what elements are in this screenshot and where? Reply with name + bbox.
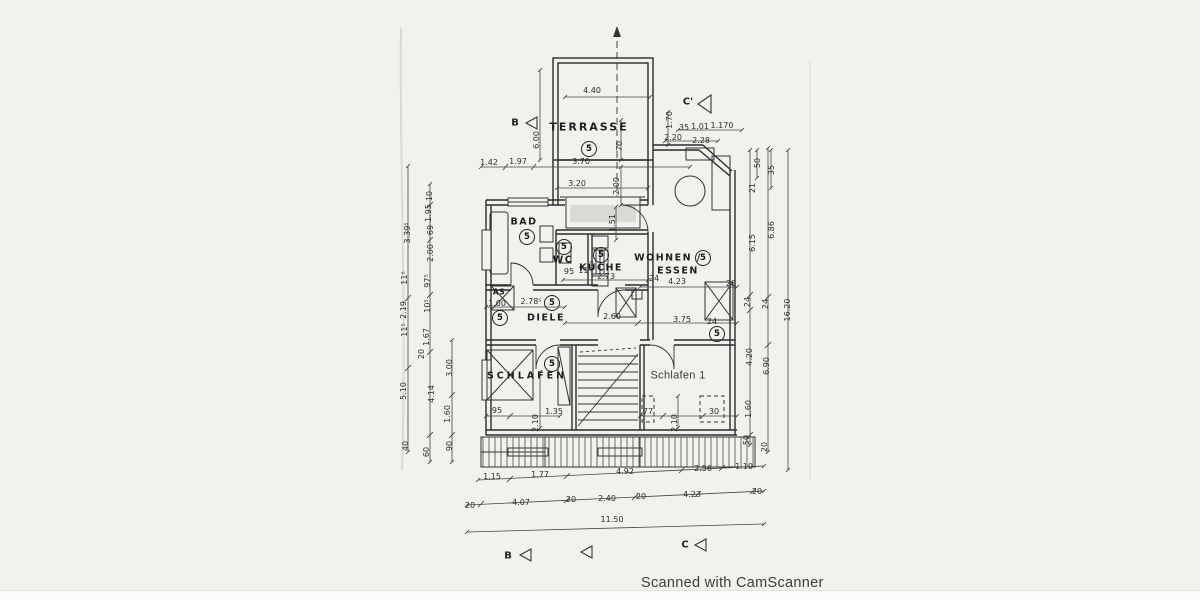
dim-label: 95 [564, 268, 574, 276]
dim-label: 21 [749, 183, 757, 193]
dim-label: 2.78⁵ [520, 298, 541, 306]
dim-label: 1.170 [711, 122, 734, 130]
dim-label: 2.00 [427, 244, 435, 262]
dim-label: 95 [492, 407, 502, 415]
dim-label: 2.10 [532, 414, 540, 432]
dim-label: 20 [566, 496, 576, 504]
dim-label: 35 [679, 124, 689, 132]
dim-label: 3.75 [673, 316, 691, 324]
dim-label: 24 [744, 297, 752, 307]
unit-number-badge-essen: 5 [709, 326, 725, 342]
room-label-schlafen: SCHLAFEN [487, 371, 567, 381]
dim-label: 3.39⁵ [404, 222, 412, 243]
room-label-terrasse: TERRASSE [549, 122, 628, 133]
dim-label: 3.20 [568, 180, 586, 188]
dim-label: 90 [446, 441, 454, 451]
section-marker-c-bottom: C [681, 540, 688, 551]
dim-label: 1.67 [423, 328, 431, 346]
dim-label: 1.10 [735, 463, 753, 471]
dim-label: 4.20 [746, 348, 754, 366]
dim-label: 5.10 [400, 382, 408, 400]
dim-label: 10⁵ [424, 299, 432, 312]
dim-label: 1.70 [666, 111, 674, 129]
bottom-white-strip [0, 590, 1200, 600]
dim-label: 30 [709, 408, 719, 416]
dim-label: 2.40 [598, 495, 616, 503]
dim-label: 4.14 [428, 385, 436, 403]
dim-label: 6.00 [533, 131, 541, 149]
dim-label: 20 [752, 488, 762, 496]
dim-label: 2.10 [671, 414, 679, 432]
dim-label: 77 [643, 408, 653, 416]
dim-label: 1.77 [531, 471, 549, 479]
unit-number-badge-schlafen: 5 [544, 356, 560, 372]
dim-label: 1.60 [444, 405, 452, 423]
dim-label: 24 [707, 318, 717, 326]
dim-label: 69 [427, 225, 435, 235]
camscanner-watermark: Scanned with CamScanner [641, 575, 824, 591]
dim-label: 11.50 [601, 516, 624, 524]
section-marker-c-prime-top: C' [683, 97, 693, 108]
scanned-floorplan-sheet: 4.406.00703.701.421.973.202.001.511.7035… [0, 0, 1200, 600]
dim-label: 3.00 [446, 359, 454, 377]
dim-label: 97⁵ [424, 274, 432, 287]
dim-label: 1.97 [509, 158, 527, 166]
dim-label: 20 [636, 493, 646, 501]
dim-label: 20 [761, 442, 769, 452]
unit-number-badge-wc: 5 [556, 239, 572, 255]
room-label-bad: BAD [511, 217, 538, 227]
dim-label: 20 [726, 280, 736, 288]
room-label-essen: ESSEN [657, 266, 699, 276]
dim-label: 20 [465, 502, 475, 510]
dim-label: 1.42 [480, 159, 498, 167]
balcony-hatch [481, 437, 755, 467]
dim-label: 1.60 [745, 400, 753, 418]
room-label-schlafen1: Schlafen 1 [651, 371, 706, 382]
room-label-diele: DIELE [527, 313, 565, 323]
section-line [613, 26, 621, 196]
dim-label: 1.51 [609, 214, 617, 232]
dim-label: 2.73 [597, 273, 615, 281]
unit-number-badge-as: 5 [492, 310, 508, 326]
unit-number-badge-kueche: 5 [593, 247, 609, 263]
dim-label: 2.28 [692, 137, 710, 145]
dim-label: 4.40 [583, 87, 601, 95]
dim-label: 20 [418, 349, 426, 359]
dim-label: 4.23 [668, 278, 686, 286]
dim-label: 1.15 [483, 473, 501, 481]
dim-label: 50 [754, 158, 762, 168]
room-label-wc: WC [553, 255, 573, 265]
unit-number-badge-bad: 5 [519, 229, 535, 245]
dim-label: 10 [426, 191, 434, 201]
dim-label: 2.19 [400, 301, 408, 319]
staircase [578, 348, 638, 426]
dim-label: 50 [743, 435, 751, 445]
room-label-shaft-as: AS [493, 288, 505, 296]
dim-label: 70 [616, 141, 624, 151]
dim-label: 4.92 [616, 468, 634, 476]
dim-label: 2.00 [613, 177, 621, 195]
room-label-kueche: KÜCHE [579, 263, 623, 273]
unit-number-badge-diele: 5 [544, 295, 560, 311]
room-label-wohnen: WOHNEN / [634, 253, 702, 263]
dim-label: 4.23 [683, 491, 701, 499]
dim-label: 2.60 [603, 313, 621, 321]
dim-label: 6.15 [749, 234, 757, 252]
unit-number-badge-terrasse: 5 [581, 141, 597, 157]
unit-number-badge-wohnen: 5 [695, 250, 711, 266]
dim-label: 11⁵ [401, 271, 409, 284]
dim-label: 11⁵ [401, 323, 409, 336]
dim-label: 1.01 [691, 123, 709, 131]
dim-label: 3.70 [572, 158, 590, 166]
section-marker-b-bottom: B [504, 551, 512, 562]
dim-label: 4.07 [512, 499, 530, 507]
dim-label: 24 [762, 299, 770, 309]
dim-label: 1.35 [545, 408, 563, 416]
dim-label: 16.20 [784, 299, 792, 322]
dim-label: 40 [402, 441, 410, 451]
section-marker-b-top: B [511, 118, 519, 129]
dim-label: 6.86 [768, 221, 776, 239]
dim-label: 1.95 [425, 204, 433, 222]
dim-label: 2.56 [694, 465, 712, 473]
dim-label: 6.90 [763, 357, 771, 375]
dim-label: 1.00 [488, 300, 506, 308]
dim-label: 35 [768, 165, 776, 175]
dim-label: 60 [423, 447, 431, 457]
dim-label: 2.20 [664, 134, 682, 142]
